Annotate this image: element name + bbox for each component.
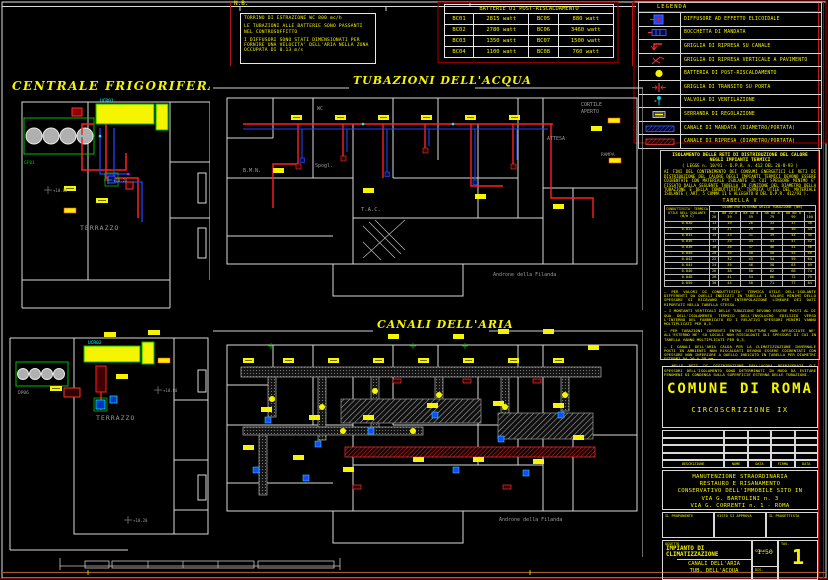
legend-item: GRIGLIA DI RIPRESA SU CANALE <box>639 39 821 53</box>
plan-centrale-frigorifera-2[interactable]: DP06 UCR02 TERRAZZO +10.80 +10.20 <box>8 330 210 558</box>
plan-tubazioni-acqua[interactable]: TUBAZIONI DELL'ACQUA <box>213 68 645 312</box>
signature-cell: VISTO SI APPROVA <box>714 512 766 538</box>
legend: LEGENDA DIFFUSORE AD EFFETTO ELICOIDALE … <box>638 2 822 149</box>
legend-item: DIFFUSORE AD EFFETTO ELICOIDALE <box>639 12 821 26</box>
room-label: B.M.N. <box>243 168 261 174</box>
revision-cell <box>795 453 818 461</box>
legend-item-label: DIFFUSORE AD EFFETTO ELICOIDALE <box>681 13 821 26</box>
oggetto-line: MANUTENZIONE STRAORDINARIA <box>663 474 817 481</box>
room-label: Spogl. <box>315 163 333 169</box>
drawing-sheet: N.B. TORRINO DI ESTRAZIONE WC 800 mc/h L… <box>0 0 828 580</box>
iso-table-body: 0.0301319263337400.0321421293640440.0341… <box>665 221 816 286</box>
serranda-regolazione-icon <box>639 108 681 121</box>
project-description: MANUTENZIONE STRAORDINARIA RESTAURO E RI… <box>662 470 818 510</box>
legend-item-label: BOCCHETTA DI MANDATA <box>681 27 821 40</box>
revision-cell <box>724 438 747 446</box>
iso-table: CONDUTTIVITA' TERMICA UTILE DELL'ISOLANT… <box>664 205 816 287</box>
legend-item-label: CANALE DI MANDATA (DIAMETRO/PORTATA) <box>681 122 821 135</box>
bocchetta-mandata-icon <box>639 27 681 40</box>
chiller-label: UCR01 <box>100 98 114 104</box>
nb-title: N.B. <box>234 0 248 7</box>
diffusore-elicoidale-icon <box>639 13 681 26</box>
valvola-ventilazione-icon <box>639 95 681 108</box>
plan-canali-aria[interactable]: CANALI DELL'ARIA <box>213 315 645 559</box>
signature-row: IL PROPONENTE VISTO SI APPROVA IL PROGET… <box>662 512 818 538</box>
table-row: BC031350 wattBC071500 watt <box>445 36 614 47</box>
oggetto-label: OGGETTO <box>665 542 679 546</box>
impianto-line: CLIMATIZZAZIONE <box>666 552 718 558</box>
room-label: RAMPA <box>601 152 615 158</box>
iso-intro: AI FINI DEL CONTENIMENTO DEI CONSUMI ENE… <box>664 170 816 197</box>
room-label: WC <box>317 106 323 112</box>
revision-header: NOME <box>724 460 747 468</box>
table-row: BC041100 wattBC08760 watt <box>445 47 614 58</box>
canale-mandata-icon <box>639 122 681 135</box>
room-labels: TERRAZZO +10.80 +10.20 <box>96 386 178 524</box>
iso-note: — I CANALI DELL'ARIA CALDA PER LA CLIMAT… <box>664 345 816 362</box>
legend-title: LEGENDA <box>639 3 821 12</box>
room-label: Androne della Filanda <box>493 272 556 278</box>
revision-grid: DESCRIZIONENOMEDATAFIRMADATA <box>662 430 818 468</box>
legend-item-label: GRIGLIA DI TRANSITO SU PORTA <box>681 81 821 94</box>
stairs <box>363 220 405 260</box>
revision-header: FIRMA <box>771 460 794 468</box>
signature-cell: IL PROPONENTE <box>662 512 714 538</box>
tav-number: 1 <box>779 545 817 569</box>
dis-label: DIS. <box>755 568 763 572</box>
iso-law-reference: ( LEGGE n. 10/91 - D.P.R. n. 412 DEL 26-… <box>664 163 816 168</box>
legend-item: BATTERIA DI POST-RISCALDAMENTO <box>639 66 821 80</box>
batteria-post-riscaldamento-icon <box>639 67 681 80</box>
level-label: +10.80 <box>163 388 178 393</box>
revision-cell <box>662 453 724 461</box>
iso-notes: — PER VALORI DI CONDUTTIVITA' TERMICA UT… <box>664 290 816 377</box>
revision-cell <box>795 438 818 446</box>
cartouche-subject: OGGETTO IMPIANTO DI CLIMATIZZAZIONE CANA… <box>662 540 752 580</box>
room-label: TERRAZZO <box>96 414 135 422</box>
nb-line: LE TUBAZIONI ALLE BATTERIE SONO PASSANTI… <box>244 24 372 35</box>
legend-item-label: VALVOLA DI VENTILAZIONE <box>681 95 821 108</box>
revision-cell <box>771 438 794 446</box>
griglia-transito-porta-icon <box>639 81 681 94</box>
revision-cell <box>771 453 794 461</box>
room-label: APERTO <box>581 109 599 115</box>
room-label: ATTESA <box>547 136 565 142</box>
oggetto-line: CONSERVATIVO DELL'IMMOBILE SITO IN <box>663 488 817 495</box>
pump-group-label: GF01 <box>24 160 35 166</box>
legend-item-label: BATTERIA DI POST-RISCALDAMENTO <box>681 67 821 80</box>
revision-cell <box>771 445 794 453</box>
cartouche-sheet-number: TAV. 1 <box>778 540 818 580</box>
annotation-tags <box>64 186 108 213</box>
legend-item: GRIGLIA DI TRANSITO SU PORTA <box>639 80 821 94</box>
battery-table-title: BATTERIE DI POST-RISCALDAMENTO <box>444 4 614 13</box>
revision-cell <box>748 430 771 438</box>
revision-cell <box>795 445 818 453</box>
walls <box>227 98 637 296</box>
revision-header: DATA <box>795 460 818 468</box>
revision-cell <box>662 438 724 446</box>
revision-cell <box>662 445 724 453</box>
iso-table-corner: CONDUTTIVITA' TERMICA UTILE DELL'ISOLANT… <box>665 205 710 221</box>
canale-ripresa-icon <box>639 135 681 148</box>
revision-cell <box>724 430 747 438</box>
iso-note: — PER TUBAZIONI CORRENTI ENTRO STRUTTURE… <box>664 329 816 342</box>
chiller-label: UCR02 <box>88 340 102 346</box>
plan-title: TUBAZIONI DELL'ACQUA <box>353 74 532 87</box>
room-label: CORTILE <box>581 102 602 108</box>
iso-note: — PER VALORI DI CONDUTTIVITA' TERMICA UT… <box>664 290 816 307</box>
plan-title: CENTRALE FRIGORIFERA <box>12 79 210 93</box>
room-labels: WC Spogl. B.M.N. T.A.C. ATTESA CORTILE A… <box>243 102 615 278</box>
griglia-ripresa-canale-icon <box>639 40 681 53</box>
revision-cell <box>771 430 794 438</box>
chiller-equipment: DP06 UCR02 <box>16 340 154 396</box>
legend-item: GRIGLIA DI RIPRESA VERTICALE A PAVIMENTO <box>639 53 821 67</box>
revision-header: DATA <box>748 460 771 468</box>
legend-item: SERRANDA DI REGOLAZIONE <box>639 107 821 121</box>
room-label: TERRAZZO <box>80 224 119 232</box>
cartouche: OGGETTO IMPIANTO DI CLIMATIZZAZIONE CANA… <box>662 540 818 572</box>
legend-item-label: GRIGLIA DI RIPRESA SU CANALE <box>681 40 821 53</box>
iso-table-title: TABELLA V <box>664 199 816 204</box>
nb-note-box: TORRINO DI ESTRAZIONE WC 800 mc/h LE TUB… <box>240 13 376 64</box>
revision-cell <box>748 438 771 446</box>
legend-item-label: SERRANDA DI REGOLAZIONE <box>681 108 821 121</box>
drawing-content-label: CANALI DELL'ARIA <box>677 561 751 568</box>
legend-item: CANALE DI MANDATA (DIAMETRO/PORTATA) <box>639 121 821 135</box>
level-label: +10.80 <box>53 188 68 193</box>
revision-cell <box>662 430 724 438</box>
oggetto-line: RESTAURO E RISANAMENTO <box>663 481 817 488</box>
legend-item: CANALE DI RIPRESA (DIAMETRO/PORTATA) <box>639 134 821 148</box>
nb-line: I DIFFUSORI SONO STATI DIMENSIONATI PER … <box>244 38 372 54</box>
table-row: BC012815 wattBC05880 watt <box>445 14 614 25</box>
walls <box>10 338 208 550</box>
legend-item-label: CANALE DI RIPRESA (DIAMETRO/PORTATA) <box>681 135 821 148</box>
legend-item: BOCCHETTA DI MANDATA <box>639 26 821 40</box>
nb-line: TORRINO DI ESTRAZIONE WC 800 mc/h <box>244 16 372 21</box>
legend-item: VALVOLA DI VENTILAZIONE <box>639 94 821 108</box>
revision-cell <box>795 430 818 438</box>
revision-cell <box>724 445 747 453</box>
legend-item-label: GRIGLIA DI RIPRESA VERTICALE A PAVIMENTO <box>681 54 821 67</box>
plan-title: CANALI DELL'ARIA <box>377 318 514 331</box>
signature-cell: IL PROGETTISTA <box>766 512 818 538</box>
table-row: BC022780 wattBC063460 watt <box>445 25 614 36</box>
room-labels: TERRAZZO +10.80 +10.20 <box>44 176 128 232</box>
tav-label: TAV. <box>781 542 789 546</box>
comune-title: COMUNE DI ROMA <box>663 381 817 397</box>
oggetto-line: VIA G. BARTOLINI n. 3 <box>663 496 817 503</box>
level-label: +10.20 <box>133 518 148 523</box>
revision-cell <box>748 445 771 453</box>
circoscrizione: CIRCOSCRIZIONE IX <box>663 406 817 414</box>
pump-group-label: DP06 <box>18 390 29 396</box>
level-label: +10.20 <box>113 178 128 183</box>
ducts-pipes <box>64 366 117 411</box>
pipes-cold <box>243 129 548 182</box>
title-block-header: COMUNE DI ROMA CIRCOSCRIZIONE IX <box>662 366 818 428</box>
room-label: Androne della Filanda <box>499 517 562 523</box>
battery-table: BATTERIE DI POST-RISCALDAMENTO BC012815 … <box>444 4 614 58</box>
revision-cell <box>724 453 747 461</box>
return-duct <box>345 447 595 457</box>
insulation-regulation-box: ISOLAMENTO DELLE RETI DI DISTRIBUZIONE D… <box>660 150 820 360</box>
plan-centrale-frigorifera[interactable]: CENTRALE FRIGORIFERA GF01 UCR01 TERR <box>8 78 210 313</box>
griglia-ripresa-pavimento-icon <box>639 54 681 67</box>
chiller-equipment: GF01 UCR01 <box>24 98 168 166</box>
impianto-line: IMPIANTO DI <box>666 546 704 552</box>
iso-table-row: 0.050304458717784 <box>665 281 816 287</box>
cartouche-scale: SCALA 1:50 DIS. <box>752 540 778 580</box>
oggetto-line: VIA G. CORRENTI n. 1 - ROMA <box>663 503 817 510</box>
iso-note: — I MONTANTI VERTICALI DELLE TUBAZIONI D… <box>664 309 816 326</box>
pipes-hot <box>243 124 593 218</box>
room-label: T.A.C. <box>361 207 381 213</box>
revision-header: DESCRIZIONE <box>662 460 724 468</box>
revision-cell <box>748 453 771 461</box>
scala-label: SCALA <box>755 549 765 553</box>
drawing-content-label: TUB. DELL'ACQUA <box>677 568 751 575</box>
fixtures <box>296 123 516 185</box>
